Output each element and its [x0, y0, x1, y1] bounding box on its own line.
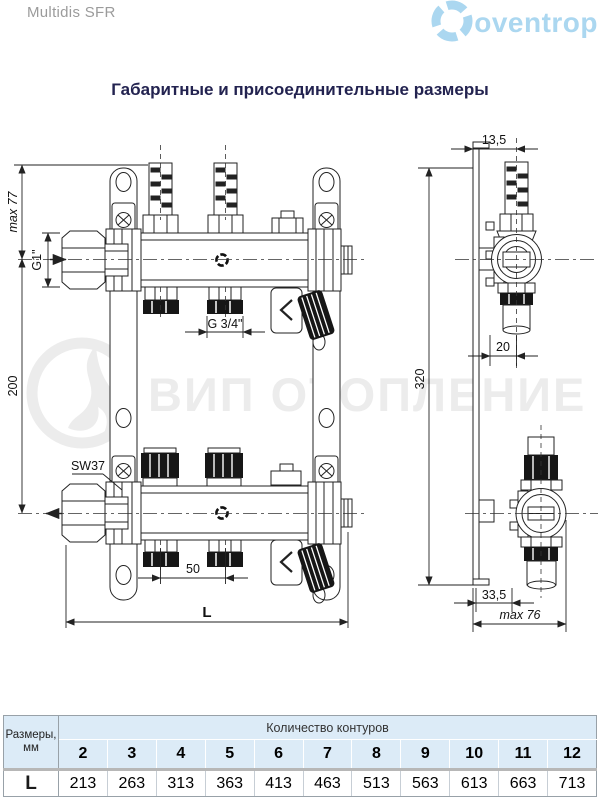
dim-label-mount-height: 320	[413, 369, 427, 390]
brand-logo: oventrop	[428, 0, 600, 45]
length-value: 463	[303, 770, 352, 797]
dim-label-axis-distance: 200	[6, 376, 20, 397]
watermark-text: ВИП ОТОПЛЕНИЕ	[148, 368, 586, 421]
length-row-label: L	[4, 770, 59, 797]
circuits-count-header: 2	[59, 740, 108, 770]
brand-name: oventrop	[474, 7, 600, 39]
corner-label-line1: Размеры,	[4, 729, 58, 742]
page-title: Габаритные и присоединительные размеры	[0, 80, 600, 100]
table-corner-label: Размеры, мм	[4, 716, 59, 770]
dim-label-total-length: L	[202, 604, 211, 621]
length-value: 263	[107, 770, 156, 797]
dim-label-bottom-depth: 33,5	[482, 588, 506, 602]
product-name: Multidis SFR	[27, 4, 116, 21]
length-value: 363	[205, 770, 254, 797]
dim-label-max-height: max 77	[6, 190, 20, 232]
circuits-count-header: 7	[303, 740, 352, 770]
circuits-count-header: 12	[548, 740, 597, 770]
length-value: 663	[499, 770, 548, 797]
corner-label-line2: мм	[4, 742, 58, 755]
length-value: 513	[352, 770, 401, 797]
circuits-count-header: 6	[254, 740, 303, 770]
length-value: 563	[401, 770, 450, 797]
circuits-count-header: 4	[156, 740, 205, 770]
dim-label-supply-thread: G1"	[30, 249, 44, 270]
length-value: 613	[450, 770, 499, 797]
dim-label-outlet-thread: G 3/4"	[207, 317, 242, 331]
side-view	[473, 142, 566, 589]
length-value: 413	[254, 770, 303, 797]
length-row: L 213 263 313 363 413 463 513 563 613 66…	[4, 770, 597, 797]
length-value: 313	[156, 770, 205, 797]
circuits-count-header: 9	[401, 740, 450, 770]
brand-ring-icon	[428, 0, 474, 45]
circuits-count-header: 3	[107, 740, 156, 770]
circuits-count-header: 8	[352, 740, 401, 770]
dim-label-max-depth: max 76	[500, 608, 541, 622]
dim-label-bracket-offset: 13,5	[482, 133, 506, 147]
datasheet-page: Multidis SFR oventrop Габаритные и присо…	[0, 0, 600, 800]
circuits-count-header: 5	[205, 740, 254, 770]
length-value: 213	[59, 770, 108, 797]
length-value: 713	[548, 770, 597, 797]
technical-drawing: ВИП ОТОПЛЕНИЕ	[0, 120, 600, 712]
dimensions-table: Размеры, мм Количество контуров 2 3 4 5 …	[3, 715, 597, 797]
circuit-count-row: 2 3 4 5 6 7 8 9 10 11 12	[4, 740, 597, 770]
dim-label-top-depth: 20	[496, 340, 510, 354]
circuits-count-header: 10	[450, 740, 499, 770]
circuits-count-header: 11	[499, 740, 548, 770]
dim-label-outlet-spacing: 50	[186, 562, 200, 576]
circuits-group-header: Количество контуров	[59, 716, 597, 740]
dim-label-wrench-size: SW37	[71, 459, 105, 473]
